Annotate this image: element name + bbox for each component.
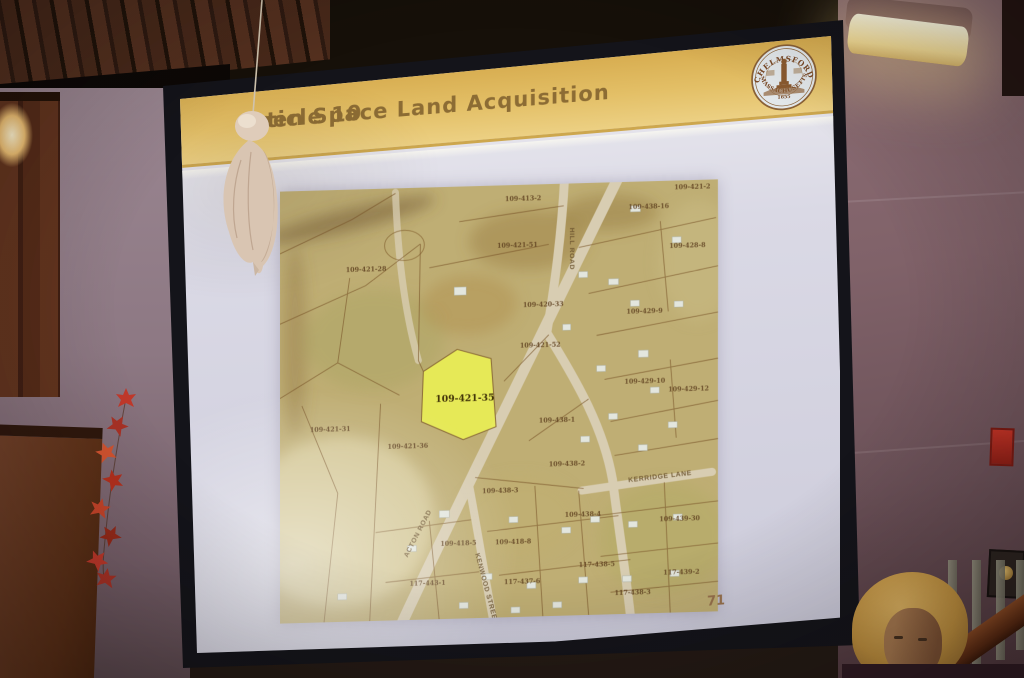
parcel-label: 109-421-52 (520, 340, 561, 349)
parcel-label: 117-438-3 (614, 588, 651, 597)
parcel-label: 109-438-1 (539, 415, 575, 424)
parcel-label: 109-438-4 (565, 510, 602, 519)
parcel-label: 109-438-2 (549, 459, 585, 468)
parcel-label: 117-438-5 (579, 560, 615, 569)
parcel-label: 109-418-5 (440, 539, 476, 548)
parcel-label: 109-420-33 (523, 300, 564, 309)
slide-page-number: 71 (707, 593, 725, 610)
parcel-label: 109-438-16 (628, 202, 669, 211)
hanging-string (253, 0, 262, 114)
parcel-label: 109-429-10 (624, 377, 665, 386)
audience-member-shoulder (842, 664, 1024, 678)
parcel-label: 109-421-28 (346, 265, 387, 274)
parcel-label: 109-429-12 (668, 385, 709, 394)
road-label: HILL ROAD (568, 228, 575, 271)
parcel-label: 117-443-1 (409, 579, 445, 588)
parcel-label: 109-428-8 (669, 241, 706, 250)
tissue-ghost-decoration (205, 0, 315, 290)
parcel-label: 109-439-30 (659, 514, 700, 523)
parcel-label: 109-438-3 (482, 486, 519, 495)
eye (894, 636, 903, 639)
chelmsford-town-seal-icon: CHELMSFORD MASSACHUSETTS 1655 (750, 40, 818, 114)
parcel-label: 109-421-36 (388, 442, 429, 451)
parcel-label: 109-418-8 (495, 537, 532, 546)
parcel-label: 109-421-2 (674, 183, 710, 192)
parcel-map: 109-413-2109-421-2109-438-16109-421-5110… (280, 179, 718, 623)
photo-of-presentation-room: Article 10 Open Space Land Acquisition C… (0, 0, 1024, 678)
autumn-leaf-garland (80, 380, 160, 590)
fire-alarm (989, 428, 1014, 467)
parcel-label: 117-439-2 (663, 568, 699, 577)
parcel-label: 109-413-2 (505, 194, 541, 203)
parcel-label: 109-421-31 (310, 425, 351, 434)
highlighted-parcel-label: 109-421-35 (435, 393, 494, 406)
door-frame (1002, 0, 1024, 96)
parcel-label: 117-437-6 (504, 577, 541, 586)
eye (918, 638, 927, 641)
parcel-label: 109-429-9 (626, 306, 663, 315)
parcel-label: 109-421-51 (497, 241, 538, 250)
